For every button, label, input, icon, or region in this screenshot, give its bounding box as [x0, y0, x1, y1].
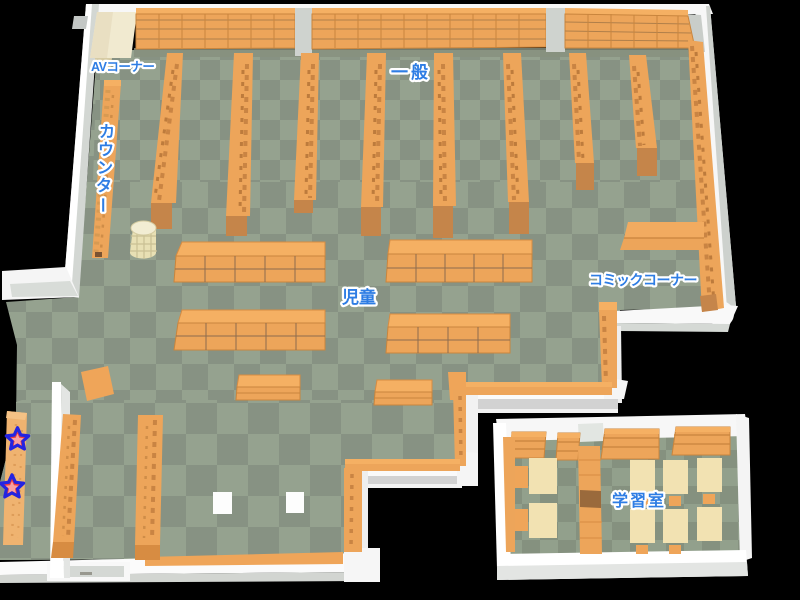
svg-text:ン: ン: [97, 160, 113, 177]
svg-text:児童: 児童: [341, 287, 376, 307]
svg-text:タ: タ: [96, 177, 112, 195]
svg-text:コミックコーナー: コミックコーナー: [589, 272, 697, 288]
svg-text:一般: 一般: [391, 62, 431, 82]
svg-text:AVコーナー: AVコーナー: [91, 60, 154, 74]
svg-text:ウ: ウ: [98, 141, 114, 159]
svg-text:学習室: 学習室: [612, 491, 666, 510]
svg-text:カ: カ: [99, 123, 115, 141]
svg-text:ー: ー: [93, 197, 110, 213]
